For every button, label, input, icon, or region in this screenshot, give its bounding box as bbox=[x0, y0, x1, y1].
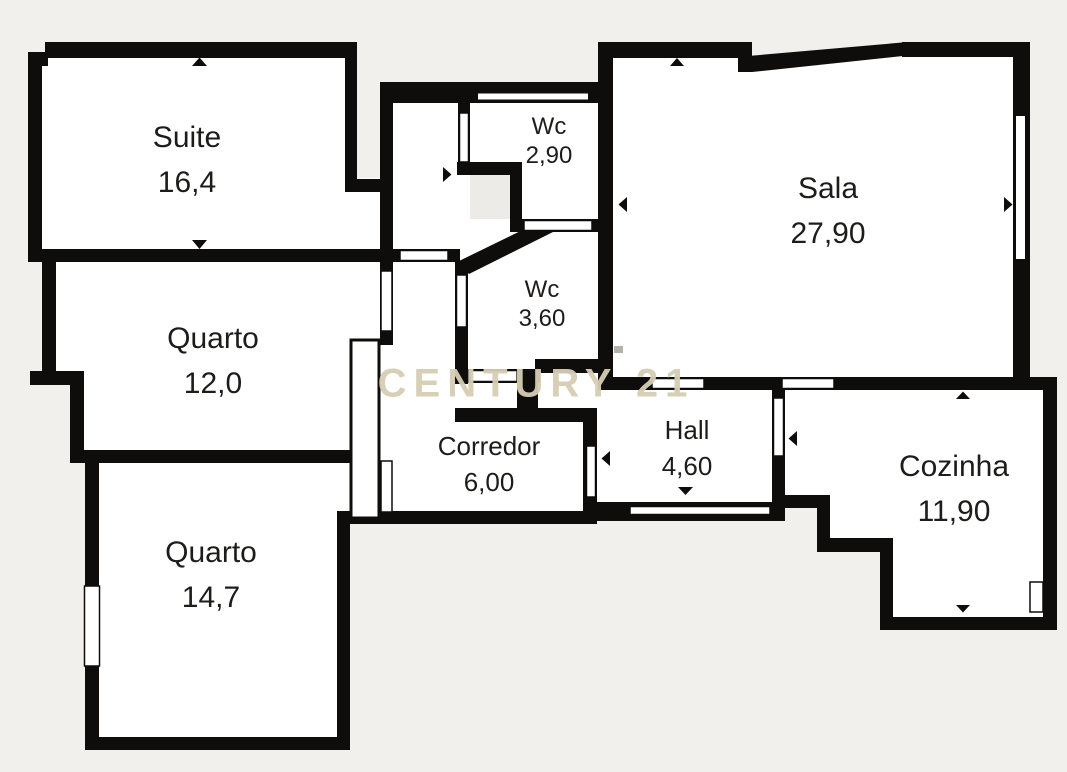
room-area: 11,90 bbox=[899, 489, 1009, 534]
room-name: Hall bbox=[662, 413, 713, 449]
room-name: Quarto bbox=[165, 530, 257, 575]
room-label-sala: Sala 27,90 bbox=[790, 166, 865, 256]
room-name: Corredor bbox=[438, 429, 541, 465]
room-name: Wc bbox=[526, 113, 573, 142]
room-label-wc-1: Wc 2,90 bbox=[526, 113, 573, 171]
room-label-hall: Hall 4,60 bbox=[662, 413, 713, 485]
room-area: 14,7 bbox=[165, 575, 257, 620]
room-area: 2,90 bbox=[526, 142, 573, 171]
floorplan-page: Suite 16,4 Quarto 12,0 Quarto 14,7 Wc 2,… bbox=[0, 0, 1067, 772]
century21-watermark: CENTURY 21 bbox=[378, 362, 695, 407]
duct-shaft bbox=[470, 175, 510, 219]
room-area: 3,60 bbox=[519, 305, 566, 334]
closet-panel bbox=[351, 340, 379, 518]
room-label-corredor: Corredor 6,00 bbox=[438, 429, 541, 501]
room-name: Quarto bbox=[167, 316, 259, 361]
room-area: 4,60 bbox=[662, 449, 713, 485]
room-name: Wc bbox=[519, 276, 566, 305]
room-name: Suite bbox=[153, 115, 221, 160]
watermark-artifact bbox=[614, 346, 623, 353]
room-area: 27,90 bbox=[790, 211, 865, 256]
room-area: 16,4 bbox=[153, 160, 221, 205]
room-label-quarto-2: Quarto 14,7 bbox=[165, 530, 257, 620]
room-label-quarto-1: Quarto 12,0 bbox=[167, 316, 259, 406]
room-label-wc-2: Wc 3,60 bbox=[519, 276, 566, 334]
room-area: 6,00 bbox=[438, 465, 541, 501]
room-label-cozinha: Cozinha 11,90 bbox=[899, 444, 1009, 534]
room-name: Sala bbox=[790, 166, 865, 211]
room-label-suite: Suite 16,4 bbox=[153, 115, 221, 205]
room-name: Cozinha bbox=[899, 444, 1009, 489]
room-area: 12,0 bbox=[167, 361, 259, 406]
